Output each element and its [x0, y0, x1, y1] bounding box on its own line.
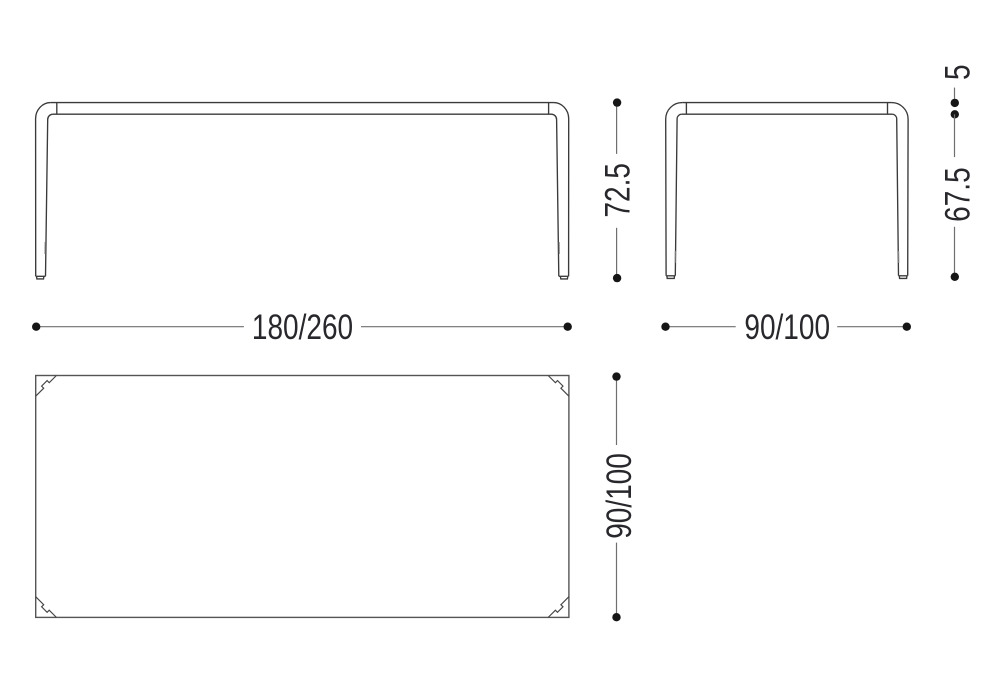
- svg-text:90/100: 90/100: [599, 453, 639, 539]
- svg-text:5: 5: [937, 64, 977, 80]
- svg-text:72.5: 72.5: [597, 163, 637, 217]
- svg-text:67.5: 67.5: [937, 167, 977, 221]
- svg-text:90/100: 90/100: [744, 307, 830, 347]
- svg-text:180/260: 180/260: [252, 307, 353, 347]
